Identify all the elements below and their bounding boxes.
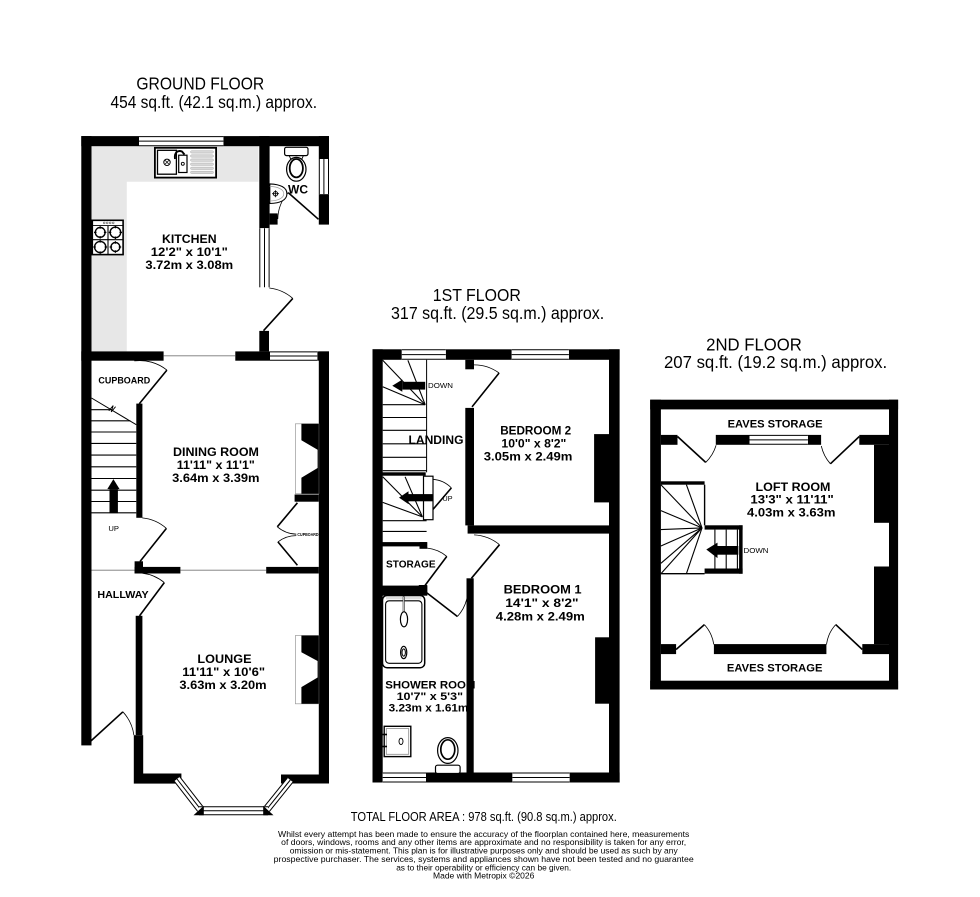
svg-text:DOWN: DOWN — [744, 546, 769, 555]
svg-text:207 sq.ft. (19.2 sq.m.) approx: 207 sq.ft. (19.2 sq.m.) approx. — [664, 352, 887, 372]
svg-text:LOUNGE: LOUNGE — [197, 652, 251, 666]
svg-text:3.05m x 2.49m: 3.05m x 2.49m — [484, 450, 573, 464]
svg-text:HALLWAY: HALLWAY — [97, 590, 149, 601]
svg-text:4.03m x 3.63m: 4.03m x 3.63m — [747, 506, 836, 520]
svg-text:DINING ROOM: DINING ROOM — [173, 445, 259, 459]
svg-text:11'11" x 10'6": 11'11" x 10'6" — [182, 665, 265, 679]
svg-text:3.23m x 1.61m: 3.23m x 1.61m — [389, 703, 469, 715]
svg-text:3.64m x 3.39m: 3.64m x 3.39m — [172, 471, 259, 485]
svg-text:WC: WC — [288, 183, 308, 197]
svg-text:STORAGE: STORAGE — [386, 559, 436, 570]
svg-text:CUPBOARD: CUPBOARD — [297, 532, 319, 537]
svg-text:10'7" x 5'3": 10'7" x 5'3" — [397, 691, 463, 703]
svg-text:UP: UP — [443, 494, 453, 503]
svg-text:SHOWER ROOM: SHOWER ROOM — [385, 680, 475, 692]
svg-text:4.28m x 2.49m: 4.28m x 2.49m — [496, 610, 585, 624]
svg-text:TOTAL FLOOR AREA : 978 sq.ft.: TOTAL FLOOR AREA : 978 sq.ft. (90.8 sq.m… — [351, 810, 617, 824]
svg-text:GROUND FLOOR: GROUND FLOOR — [136, 73, 264, 93]
svg-text:CUPBOARD: CUPBOARD — [98, 375, 150, 385]
svg-text:EAVES STORAGE: EAVES STORAGE — [728, 419, 823, 431]
svg-text:454 sq.ft. (42.1 sq.m.) approx: 454 sq.ft. (42.1 sq.m.) approx. — [111, 92, 318, 112]
svg-text:BEDROOM 2: BEDROOM 2 — [500, 424, 571, 438]
svg-text:3.63m x 3.20m: 3.63m x 3.20m — [179, 678, 266, 692]
svg-text:317 sq.ft. (29.5 sq.m.) approx: 317 sq.ft. (29.5 sq.m.) approx. — [391, 303, 604, 323]
svg-text:BEDROOM 1: BEDROOM 1 — [504, 583, 582, 597]
svg-text:DOWN: DOWN — [428, 381, 453, 390]
svg-text:Made with Metropix ©2026: Made with Metropix ©2026 — [433, 871, 535, 881]
svg-text:3.72m x 3.08m: 3.72m x 3.08m — [145, 258, 233, 272]
svg-text:12'2" x 10'1": 12'2" x 10'1" — [151, 245, 228, 259]
svg-text:14'1" x 8'2": 14'1" x 8'2" — [505, 596, 578, 610]
svg-text:13'3" x 11'11": 13'3" x 11'11" — [750, 493, 833, 507]
svg-text:11'11" x 11'1": 11'11" x 11'1" — [177, 458, 255, 472]
svg-text:KITCHEN: KITCHEN — [162, 232, 217, 246]
svg-text:EAVES STORAGE: EAVES STORAGE — [727, 663, 823, 675]
svg-text:1ST FLOOR: 1ST FLOOR — [433, 285, 521, 305]
svg-text:LANDING: LANDING — [409, 433, 464, 447]
svg-text:10'0" x 8'2": 10'0" x 8'2" — [501, 437, 566, 451]
svg-text:UP: UP — [108, 524, 119, 533]
